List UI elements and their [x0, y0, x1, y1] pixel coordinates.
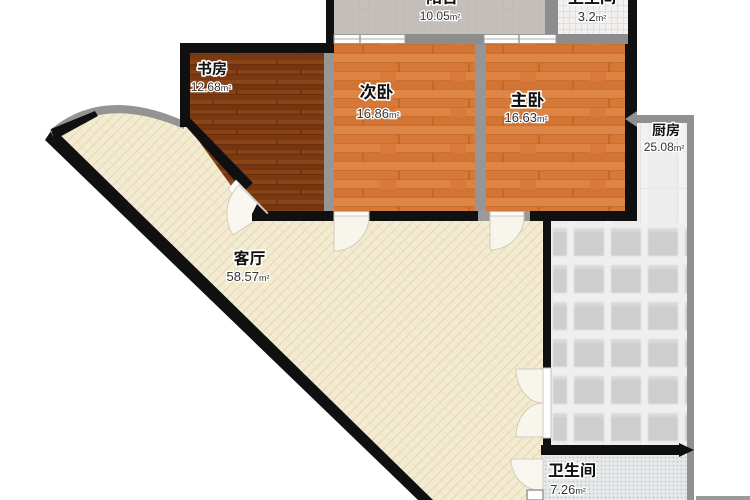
svg-text:12.68m²: 12.68m²	[191, 80, 232, 94]
svg-text:25.08m²: 25.08m²	[644, 140, 685, 154]
svg-text:10.05m²: 10.05m²	[420, 9, 461, 23]
